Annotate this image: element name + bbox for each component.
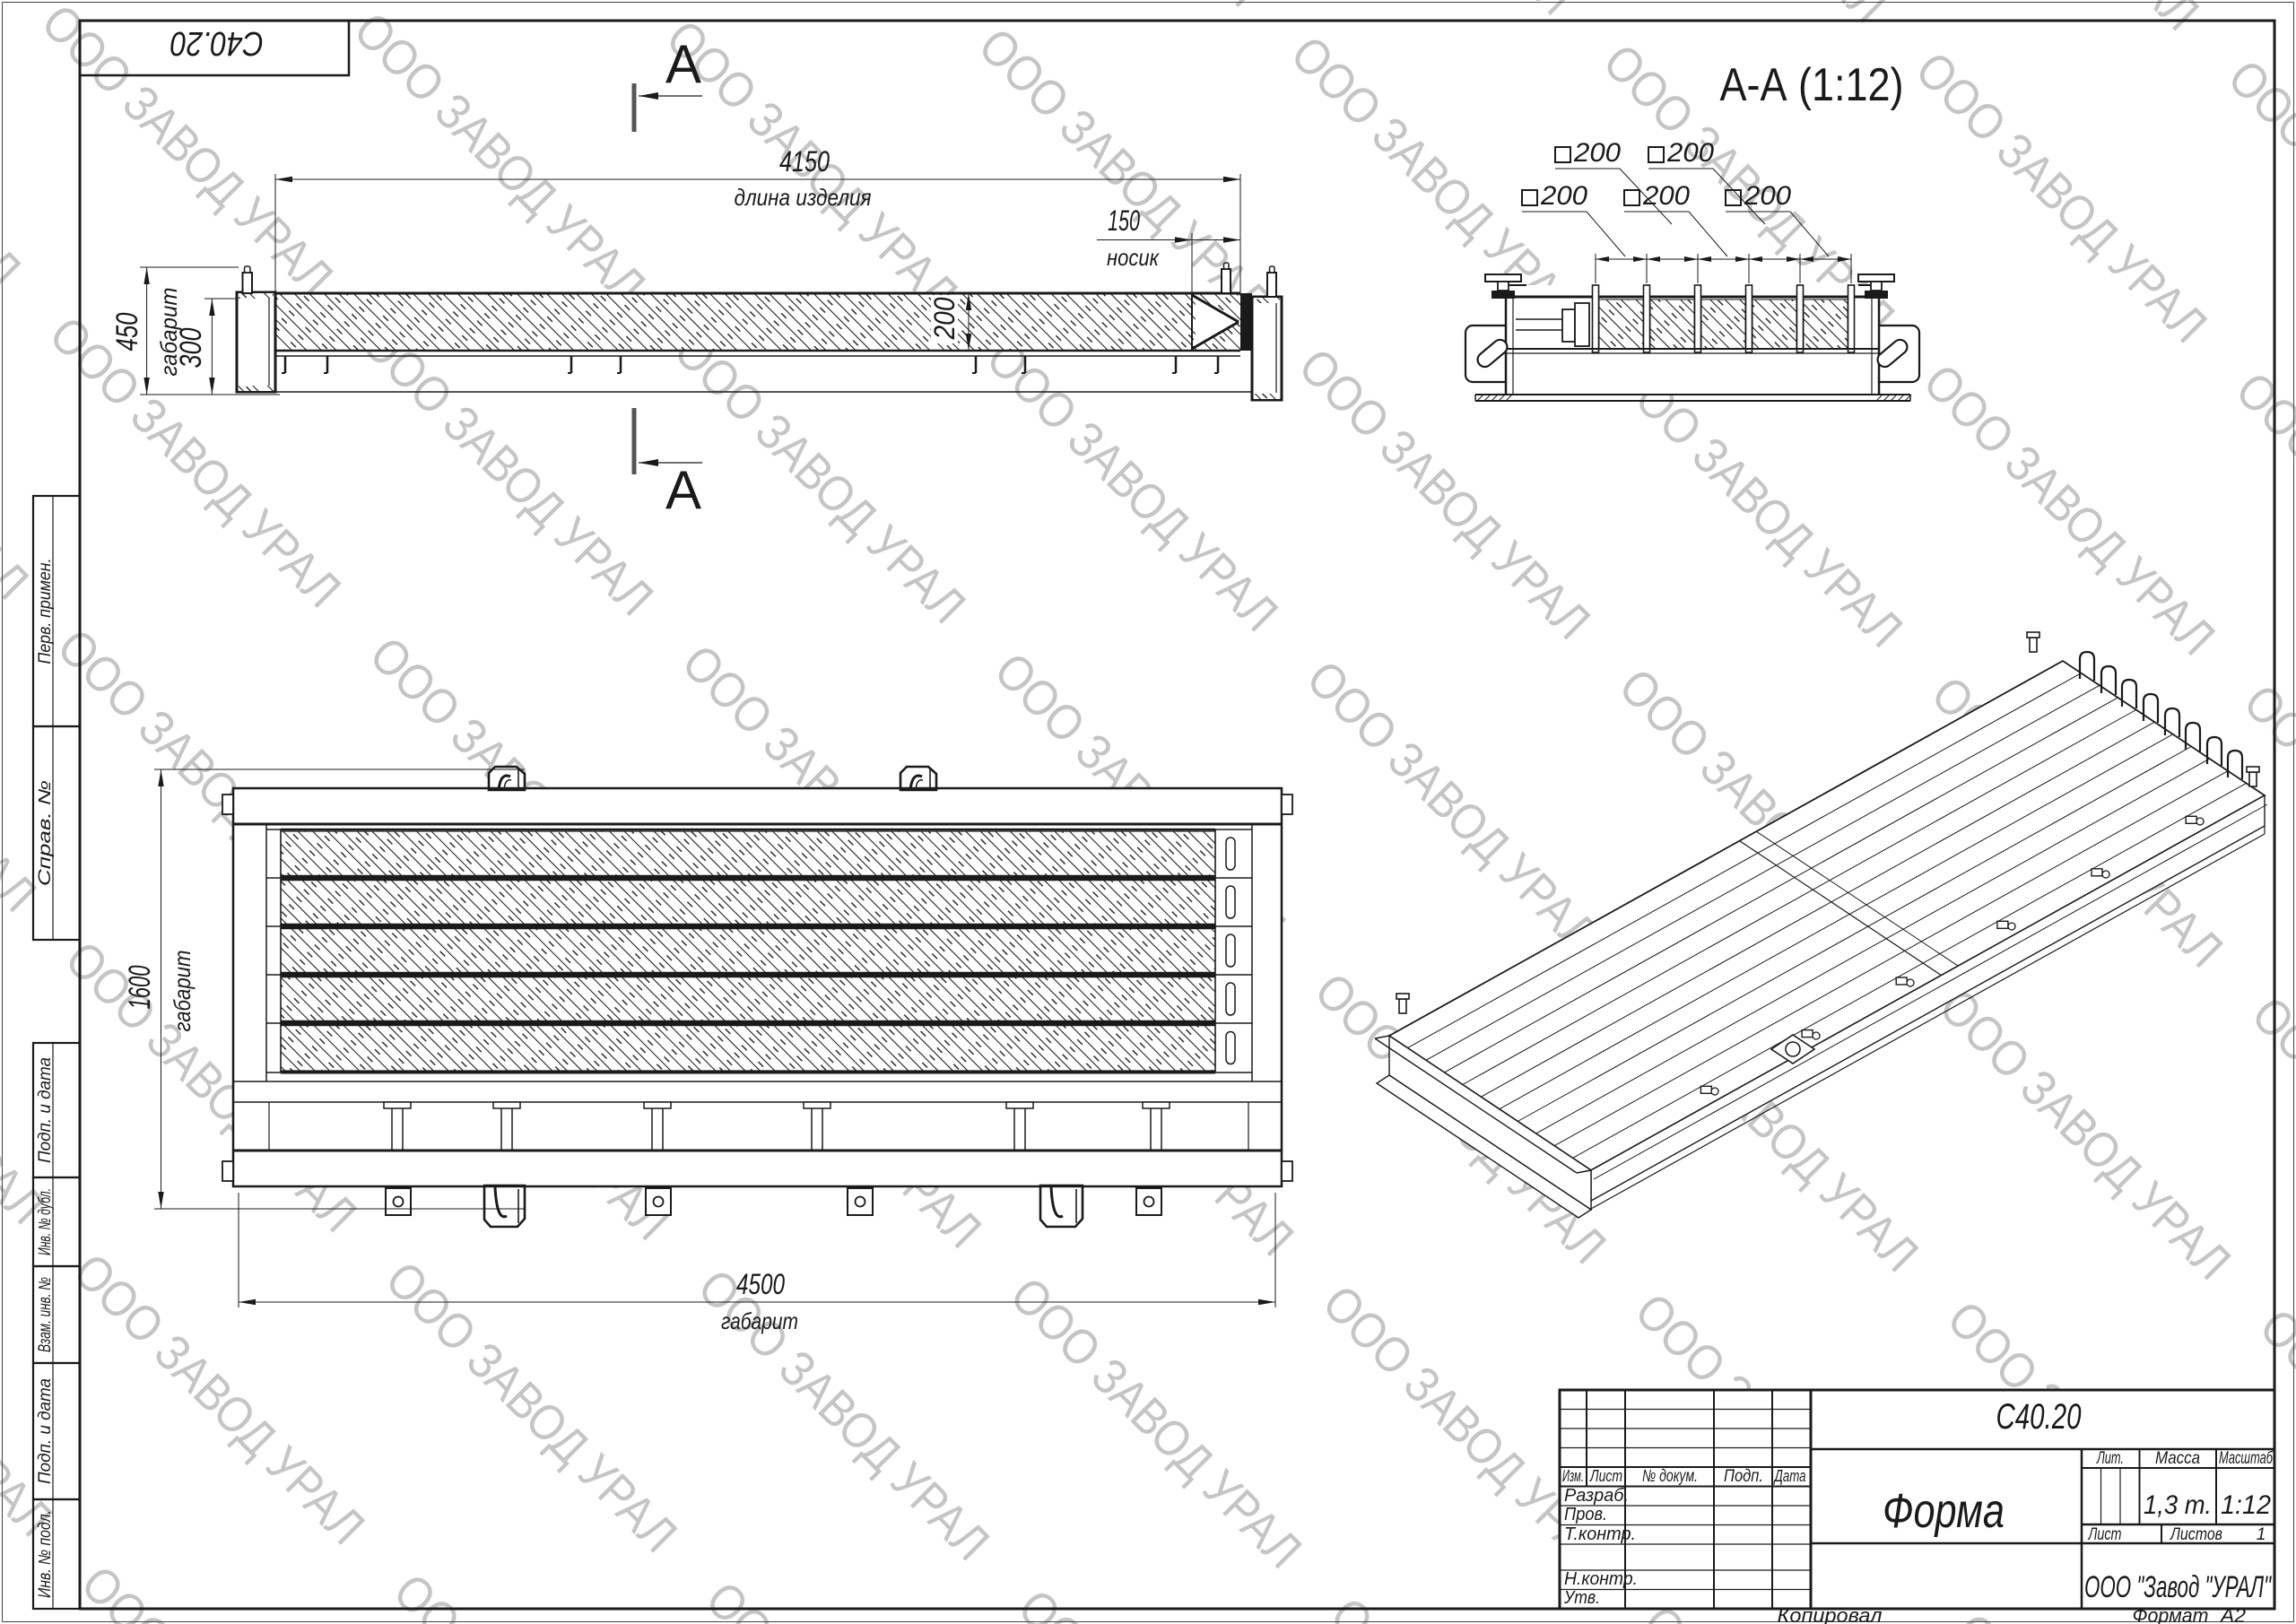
svg-text:150: 150	[1108, 204, 1140, 237]
svg-text:Лит.: Лит.	[2096, 1449, 2124, 1468]
svg-text:Лист: Лист	[2087, 1525, 2122, 1544]
svg-text:Листов: Листов	[2169, 1525, 2222, 1544]
svg-text:200: 200	[1540, 181, 1587, 211]
svg-text:Форма: Форма	[1883, 1484, 2005, 1538]
svg-text:Формат: Формат	[2133, 1604, 2209, 1624]
svg-text:А2: А2	[2219, 1604, 2246, 1624]
svg-text:Масштаб: Масштаб	[2219, 1449, 2274, 1468]
svg-text:Масса: Масса	[2155, 1449, 2200, 1468]
svg-text:1:12: 1:12	[2221, 1490, 2271, 1520]
svg-text:450: 450	[110, 312, 144, 351]
svg-text:Справ. №: Справ. №	[36, 780, 55, 886]
svg-text:Перв. примен.: Перв. примен.	[36, 559, 55, 664]
svg-text:200: 200	[1744, 181, 1791, 211]
svg-text:1: 1	[2257, 1525, 2266, 1544]
svg-text:200: 200	[1642, 181, 1690, 211]
svg-text:Подп.: Подп.	[1724, 1467, 1763, 1486]
svg-text:200: 200	[1573, 138, 1621, 168]
svg-text:А: А	[665, 34, 701, 94]
svg-text:А: А	[665, 460, 701, 520]
svg-text:Копировал: Копировал	[1778, 1604, 1883, 1624]
svg-text:Н.контр.: Н.контр.	[1564, 1569, 1638, 1589]
svg-text:300: 300	[174, 327, 208, 368]
svg-text:габарит: габарит	[721, 1307, 798, 1334]
svg-text:Лист: Лист	[1589, 1467, 1622, 1485]
svg-text:Инв. № подл.: Инв. № подл.	[36, 1510, 55, 1598]
svg-text:Разраб.: Разраб.	[1564, 1486, 1629, 1506]
svg-text:С40.20: С40.20	[1996, 1397, 2082, 1437]
svg-text:Т.контр.: Т.контр.	[1564, 1524, 1636, 1544]
svg-text:200: 200	[1666, 138, 1714, 168]
svg-text:габарит: габарит	[169, 951, 196, 1032]
svg-text:№ докум.: № докум.	[1642, 1467, 1698, 1486]
svg-text:Подп. и дата: Подп. и дата	[36, 1057, 55, 1163]
svg-text:Взам. инв. №: Взам. инв. №	[36, 1277, 55, 1352]
svg-text:длина изделия: длина изделия	[735, 184, 872, 211]
svg-text:А-А (1:12): А-А (1:12)	[1720, 59, 1904, 111]
svg-text:200: 200	[928, 297, 961, 340]
svg-text:Изм.: Изм.	[1562, 1467, 1584, 1485]
svg-text:1600: 1600	[123, 965, 157, 1009]
svg-text:Дата: Дата	[1773, 1467, 1805, 1485]
svg-text:Подп. и дата: Подп. и дата	[36, 1378, 55, 1484]
svg-text:С40.20: С40.20	[170, 24, 264, 62]
svg-text:4150: 4150	[779, 145, 830, 178]
svg-text:Инв. № дубл.: Инв. № дубл.	[36, 1188, 55, 1255]
svg-text:носик: носик	[1107, 244, 1160, 271]
svg-text:1,3 т.: 1,3 т.	[2144, 1490, 2212, 1520]
svg-text:Пров.: Пров.	[1564, 1505, 1607, 1524]
svg-text:ООО "Завод "УРАЛ": ООО "Завод "УРАЛ"	[2084, 1570, 2272, 1604]
svg-text:4500: 4500	[736, 1268, 785, 1300]
svg-text:Утв.: Утв.	[1563, 1588, 1600, 1608]
